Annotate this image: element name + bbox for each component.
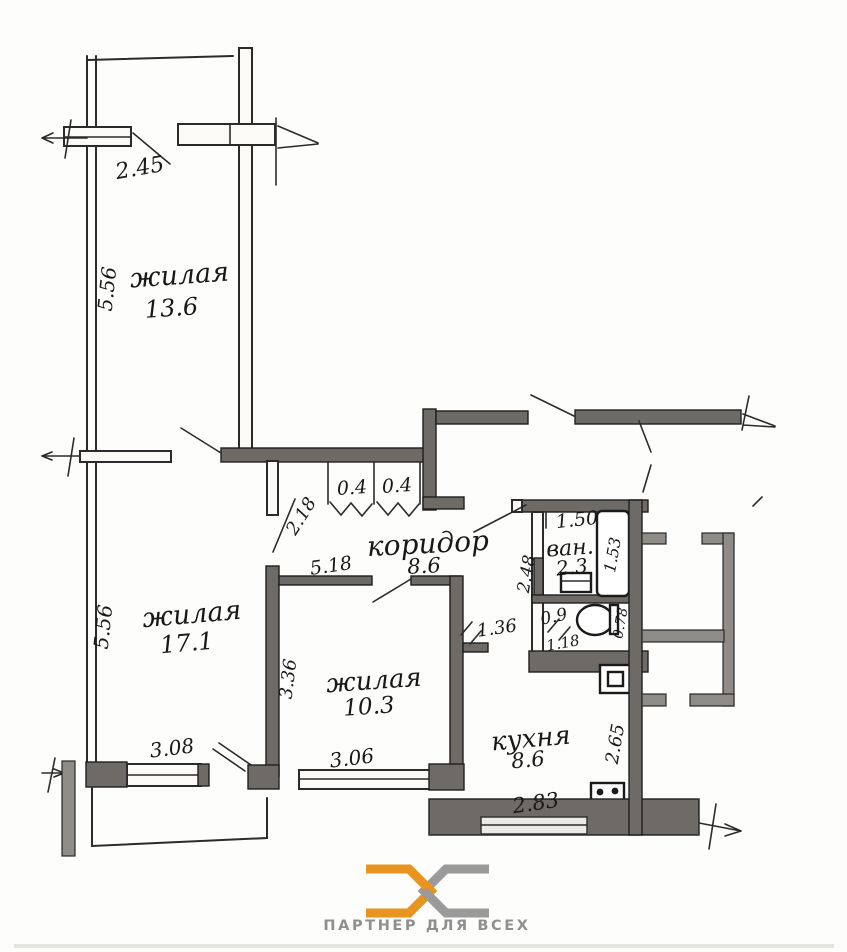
wall-segment — [423, 497, 464, 509]
dim-label: 5.56 — [93, 265, 122, 312]
logo: ПАРТНЕР ДЛЯ ВСЕХ — [323, 869, 530, 934]
balcony-top-edge — [88, 56, 233, 60]
door-swing-line — [373, 579, 411, 602]
dim-label: 0.4 — [381, 474, 413, 498]
room-area: 8.6 — [510, 747, 545, 774]
floor-plan-drawing: жилая 13.6 5.56 2.45 жилая 17.1 5.56 3.0… — [0, 0, 847, 952]
wall-segment — [642, 533, 666, 544]
room-label: жилая — [129, 257, 230, 295]
stray-mark — [753, 497, 762, 506]
dim-arrow — [699, 804, 741, 849]
wall-segment — [248, 765, 279, 789]
walls-layer-2 — [42, 461, 762, 856]
room-area: 2.3 — [554, 553, 589, 580]
dim-label: 0.9 — [539, 604, 570, 629]
dim-label: 0.4 — [336, 476, 368, 500]
wall-segment — [436, 411, 528, 424]
room-area: 13.6 — [144, 292, 199, 324]
dim-label: 5.56 — [89, 603, 118, 650]
dim-label: 3.36 — [276, 658, 302, 700]
dim-label: 2.65 — [602, 722, 630, 766]
wall-segment — [423, 409, 436, 510]
wall-segment — [690, 694, 734, 706]
wall-segment — [575, 410, 741, 424]
wall-segment — [429, 764, 464, 790]
wall-end-cap — [198, 764, 209, 786]
wall-segment — [267, 461, 278, 515]
wall-segment — [463, 643, 488, 652]
balcony-outline — [92, 788, 267, 846]
wall-segment — [642, 694, 666, 706]
wall-segment — [629, 500, 642, 835]
door-swing-line — [639, 421, 651, 492]
closet-zigzag — [377, 502, 419, 516]
dim-arrow — [276, 118, 318, 185]
dim-arrow — [42, 452, 79, 460]
wall-segment — [723, 533, 734, 706]
vent-shaft-inner — [608, 672, 623, 686]
logo-caption: ПАРТНЕР ДЛЯ ВСЕХ — [323, 918, 530, 934]
dim-tick — [68, 438, 74, 476]
closet-zigzag — [330, 502, 372, 516]
wall-segment — [450, 576, 463, 776]
wall-segment — [80, 451, 171, 462]
wall-segment — [642, 630, 724, 642]
wall-segment — [266, 566, 279, 776]
dim-label: 1.36 — [476, 615, 519, 641]
room-area: 8.6 — [407, 553, 442, 579]
dim-arrow — [742, 396, 775, 430]
wall-segment — [62, 761, 75, 856]
door-swing-line — [531, 395, 574, 416]
room-area: 10.3 — [342, 692, 395, 722]
wall-segment — [221, 448, 430, 462]
scanned-floor-plan-page: жилая 13.6 5.56 2.45 жилая 17.1 5.56 3.0… — [0, 0, 847, 952]
stove-burner — [597, 789, 604, 796]
dim-arrow — [42, 758, 64, 792]
window — [178, 124, 275, 145]
logo-weave-patch — [424, 891, 438, 905]
room-area: 17.1 — [159, 627, 215, 660]
dim-label: 1.50 — [555, 507, 599, 533]
toilet — [577, 605, 613, 635]
scan-edge-artifact — [14, 944, 834, 948]
dim-label: 3.08 — [148, 733, 195, 762]
wall-segment — [86, 762, 127, 787]
labels-layer: жилая 13.6 5.56 2.45 жилая 17.1 5.56 3.0… — [89, 152, 632, 818]
door-swing-line — [181, 428, 221, 453]
dim-label: 2.45 — [113, 152, 167, 185]
dim-label: 3.06 — [328, 743, 375, 772]
door-swing-line — [213, 743, 251, 771]
wall-segment — [239, 48, 252, 456]
stove-burner — [612, 788, 619, 795]
